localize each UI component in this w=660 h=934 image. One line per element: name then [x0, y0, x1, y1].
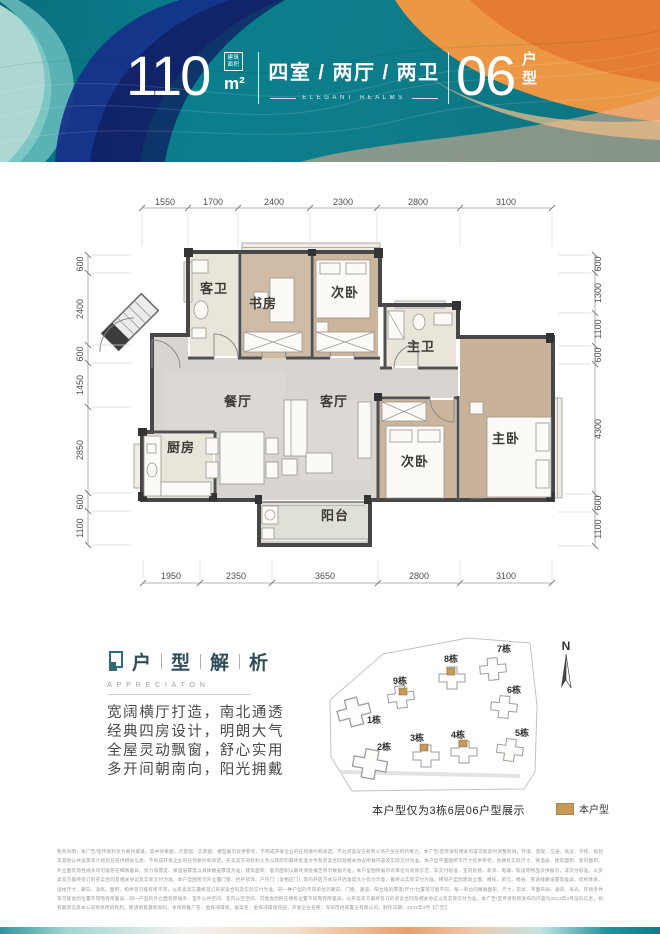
dim-label: 3650 — [315, 571, 335, 581]
dim-label: 3100 — [496, 197, 516, 207]
dim-label: 1700 — [203, 197, 223, 207]
layout-subtitle-row: ELEGANT REALMS — [263, 95, 445, 101]
title-separator — [161, 654, 162, 669]
subtitle-dash-left — [270, 98, 296, 99]
area-label-box: 建筑 面积 — [224, 52, 243, 71]
dim-label: 2300 — [333, 197, 353, 207]
unit-suffix-char2: 型 — [522, 71, 537, 88]
analysis-title-char: 析 — [249, 648, 269, 675]
floorplan-svg: 客卫 书房 次卧 主卫 餐厅 客厅 厨房 次卧 主卧 阳台 — [55, 190, 607, 598]
analysis-text: 宽阔横厅打造，南北通透 经典四房设计，明朗大气 全屋灵动飘窗，舒心实用 多开间朝… — [107, 704, 284, 780]
area-unit: m² — [224, 74, 254, 94]
dim-label: 2400 — [264, 197, 284, 207]
analysis-line: 经典四房设计，明朗大气 — [107, 723, 284, 742]
header-banner: 110 建筑 面积 m² 四室 / 两厅 / 两卫 ELEGANT REALMS… — [0, 0, 660, 162]
area-unit-column: 建筑 面积 m² — [224, 52, 254, 94]
room-label-bedroom-top: 次卧 — [331, 285, 359, 300]
bottom-gradient-strip — [0, 927, 660, 934]
room-label-dining: 餐厅 — [223, 394, 252, 409]
header-divider-right — [448, 52, 449, 104]
dim-label: 600 — [75, 494, 85, 509]
header-content: 110 建筑 面积 m² 四室 / 两厅 / 两卫 ELEGANT REALMS… — [0, 0, 660, 162]
area-value: 110 — [126, 48, 209, 104]
room-label-kitchen: 厨房 — [167, 440, 195, 455]
dim-label: 600 — [593, 256, 603, 271]
dim-label: 1450 — [75, 375, 85, 395]
dim-label: 2350 — [226, 571, 246, 581]
building-label: 9栋 — [393, 675, 407, 686]
building-label: 8栋 — [444, 653, 458, 664]
analysis-line: 多开间朝南向，阳光拥戴 — [107, 761, 284, 780]
dim-label: 600 — [75, 346, 85, 361]
building-label: 6栋 — [507, 684, 521, 695]
area-label-line2: 面积 — [227, 62, 239, 69]
dim-label: 3100 — [496, 571, 516, 581]
stairwell — [102, 294, 159, 351]
analysis-icon — [106, 650, 126, 672]
dim-label: 1550 — [155, 197, 175, 207]
analysis-title-char: 解 — [210, 648, 230, 675]
sitemap-caption: 本户型仅为3栋6层06户型展示 — [372, 802, 525, 818]
layout-subtitle: ELEGANT REALMS — [302, 95, 405, 101]
room-label-balcony: 阳台 — [321, 508, 349, 523]
unit-suffix: 户 型 — [522, 52, 537, 87]
dim-label: 2850 — [75, 440, 85, 460]
subtitle-dash-right — [412, 98, 438, 99]
room-label-master: 主卧 — [492, 431, 520, 446]
legend-label: 本户型 — [579, 801, 609, 816]
building-label: 3栋 — [410, 732, 424, 743]
sitemap-legend: 本户型 — [556, 801, 609, 816]
dim-label: 1100 — [75, 518, 85, 537]
sitemap-svg: 1栋 2栋 3栋 4栋 5栋 6栋 7栋 8栋 9栋 N — [320, 628, 610, 800]
building-label: 5栋 — [515, 727, 529, 738]
room-label-study: 书房 — [249, 296, 277, 311]
dim-label: 1950 — [161, 571, 181, 581]
title-separator — [200, 654, 201, 669]
layout-block: 四室 / 两厅 / 两卫 ELEGANT REALMS — [263, 56, 445, 101]
analysis-line: 宽阔横厅打造，南北通透 — [107, 704, 284, 723]
analysis-title: 户型解析 — [132, 648, 269, 675]
dim-label: 600 — [593, 495, 603, 510]
legend-swatch — [556, 803, 574, 815]
dim-label: 2400 — [75, 299, 85, 319]
dim-label: 2800 — [409, 571, 429, 581]
room-label-living: 客厅 — [320, 394, 348, 409]
building-label: 4栋 — [451, 729, 465, 740]
analysis-title-char: 型 — [171, 648, 191, 675]
header-divider-left — [258, 52, 259, 104]
dim-label: 1100 — [593, 319, 603, 338]
analysis-line: 全屋灵动飘窗，舒心实用 — [107, 742, 284, 761]
analysis-divider — [107, 694, 251, 695]
compass-n-label: N — [562, 639, 571, 653]
poster-page: 110 建筑 面积 m² 四室 / 两厅 / 两卫 ELEGANT REALMS… — [0, 0, 660, 934]
room-label-guest-bath: 客卫 — [200, 281, 228, 296]
title-separator — [239, 654, 240, 669]
analysis-title-char: 户 — [132, 648, 152, 675]
site-buildings — [335, 657, 525, 781]
dim-label: 1300 — [593, 283, 603, 303]
unit-number: 06 — [456, 48, 514, 104]
disclaimer-text: 免责声明：本广告/宣传资料仅为要约邀请，其中效果图、示意图、实景图、模型展示仅供… — [57, 847, 603, 913]
building-label: 7栋 — [497, 643, 511, 654]
dim-label: 2800 — [408, 197, 428, 207]
layout-text: 四室 / 两厅 / 两卫 — [263, 56, 445, 85]
room-label-master-bath: 主卫 — [407, 339, 435, 354]
analysis-subtitle: APPRECIATON — [107, 680, 210, 689]
building-label: 2栋 — [377, 741, 391, 752]
building-label: 1栋 — [367, 714, 381, 725]
dim-label: 600 — [75, 256, 85, 271]
unit-suffix-char1: 户 — [522, 52, 537, 69]
dim-label: 4300 — [593, 419, 603, 439]
room-label-bedroom-bottom: 次卧 — [401, 454, 429, 469]
dim-label: 600 — [593, 347, 603, 362]
dim-label: 1100 — [593, 519, 603, 538]
compass-icon: N — [561, 639, 571, 688]
area-label-line1: 建筑 — [227, 55, 239, 62]
